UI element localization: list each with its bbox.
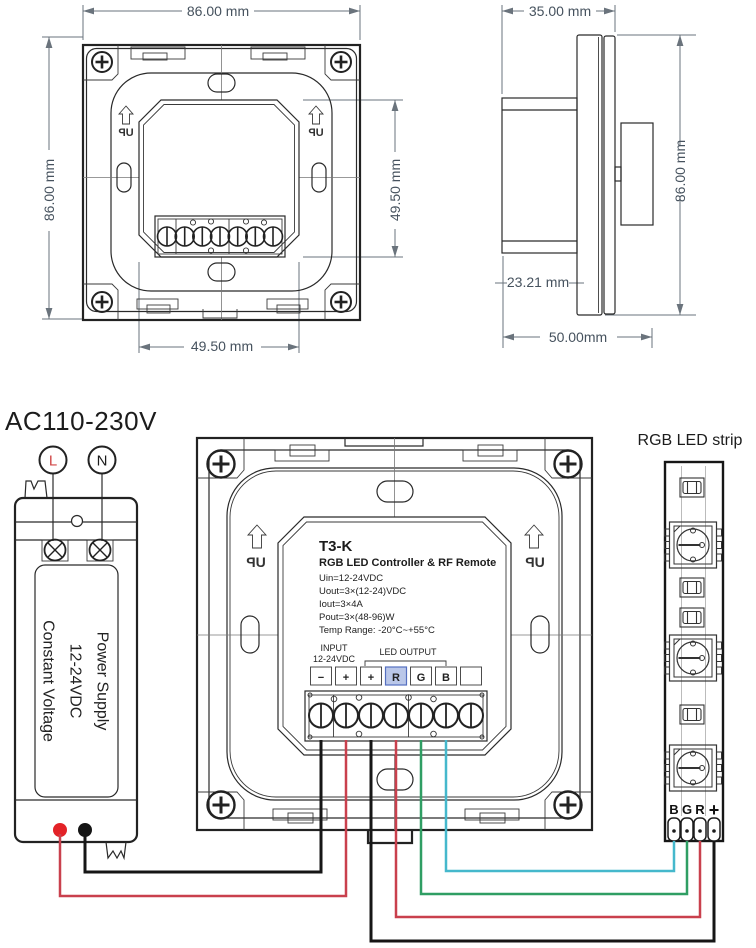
- panel-up-arrow-right: UP: [525, 525, 545, 570]
- front-panel-body: UP UP: [83, 45, 360, 320]
- wire-led-plus: [371, 740, 714, 941]
- controller-back-panel: UP UP T3-K RGB LED Controller & RF Remot…: [197, 438, 592, 843]
- spec-uin: Uin=12-24VDC: [319, 573, 383, 584]
- svg-text:Power Supply: Power Supply: [94, 632, 111, 731]
- dim-side-height-label: 86.00 mm: [672, 140, 688, 202]
- wire-led-r: [396, 740, 700, 917]
- input-voltage-label: 12-24VDC: [313, 654, 356, 664]
- led-strip-label: RGB LED strip: [638, 432, 743, 449]
- side-view: 35.00 mm 86.00 mm 23.21 mm 50.00mm: [495, 3, 696, 348]
- svg-text:12-24VDC: 12-24VDC: [67, 644, 84, 719]
- side-back-box: [502, 98, 577, 253]
- front-up-arrow-right: UP: [308, 106, 323, 139]
- wires: [60, 740, 714, 941]
- terminal-minus: −: [318, 672, 324, 684]
- terminal-r: R: [392, 672, 400, 684]
- terminal-labels: INPUT 12-24VDC LED OUTPUT − + + R G B: [311, 643, 482, 685]
- pad-label-plus: +: [709, 800, 720, 820]
- terminal-plus-out: +: [368, 672, 374, 684]
- strip-resistors: [680, 478, 704, 724]
- up-label: UP: [246, 554, 265, 570]
- terminal-b: B: [442, 672, 450, 684]
- terminal-plus-in: +: [343, 672, 349, 684]
- front-view: 86.00 mm 86.00 mm 49.50 mm: [41, 3, 403, 354]
- wiring-diagram: AC110-230V L N: [5, 406, 743, 941]
- controller-title: RGB LED Controller & RF Remote: [319, 557, 496, 569]
- dim-front-height-label: 86.00 mm: [41, 159, 57, 221]
- neutral-terminal: N: [89, 447, 116, 474]
- up-label: UP: [525, 554, 544, 570]
- panel-hole-left: [241, 616, 259, 653]
- ac-input-label: AC110-230V: [5, 406, 157, 436]
- technical-drawing-page: 86.00 mm 86.00 mm 49.50 mm: [0, 0, 756, 948]
- side-profile: [502, 35, 653, 315]
- spec-iout: Iout=3×4A: [319, 599, 364, 610]
- psu-label: Power Supply 12-24VDC Constant Voltage: [40, 620, 111, 742]
- spec-temp: Temp Range: -20°C~+55°C: [319, 625, 435, 636]
- terminal-g: G: [417, 672, 426, 684]
- dim-side-total-label: 50.00mm: [549, 329, 607, 345]
- front-touch-frame-inner: [144, 105, 295, 253]
- spec-uout: Uout=3×(12-24)VDC: [319, 586, 406, 597]
- pad-label-b: B: [669, 802, 678, 817]
- live-terminal: L: [40, 447, 67, 474]
- panel-hole-top: [377, 481, 413, 502]
- up-label: UP: [118, 127, 133, 139]
- pad-label-r: R: [695, 802, 705, 817]
- dim-side-depth-label: 23.21 mm: [507, 274, 569, 290]
- front-touch-frame-outer: [139, 100, 299, 257]
- dim-front-width: 86.00 mm: [83, 3, 360, 40]
- up-label: UP: [308, 127, 323, 139]
- panel-up-arrow-left: UP: [246, 525, 266, 570]
- spec-pout: Pout=3×(48-96)W: [319, 612, 395, 623]
- dim-front-inner-width-label: 49.50 mm: [191, 338, 253, 354]
- dim-side-height: 86.00 mm: [605, 35, 696, 315]
- psu-input-screws: [45, 540, 111, 561]
- led-controller-diagram: 86.00 mm 86.00 mm 49.50 mm: [0, 0, 756, 948]
- rgb-led-strip: RGB LED strip: [638, 432, 743, 841]
- power-supply: Power Supply 12-24VDC Constant Voltage: [15, 481, 137, 858]
- controller-specs: T3-K RGB LED Controller & RF Remote Uin=…: [319, 538, 496, 636]
- output-label: LED OUTPUT: [379, 647, 437, 657]
- dim-side-depth: 23.21 mm: [495, 274, 584, 290]
- neutral-label: N: [97, 453, 108, 470]
- strip-leds: [665, 522, 722, 791]
- dim-front-width-label: 86.00 mm: [187, 3, 249, 19]
- pad-label-g: G: [682, 802, 692, 817]
- front-terminal-block: [155, 216, 285, 257]
- screw-terminal-block: [305, 691, 487, 741]
- strip-pads: B G R +: [668, 800, 720, 841]
- live-label: L: [49, 453, 57, 470]
- dim-front-height: 86.00 mm: [41, 37, 83, 319]
- dim-front-inner-height-label: 49.50 mm: [387, 159, 403, 221]
- side-wall-block: [621, 123, 653, 225]
- front-mounting-clips: [131, 47, 308, 318]
- dim-side-width-label: 35.00 mm: [529, 3, 591, 19]
- controller-model: T3-K: [319, 538, 353, 555]
- front-up-arrow-left: UP: [118, 106, 133, 139]
- svg-text:Constant Voltage: Constant Voltage: [40, 620, 57, 742]
- input-label: INPUT: [321, 643, 349, 653]
- panel-hole-right: [531, 616, 549, 653]
- dim-front-inner-width: 49.50 mm: [139, 262, 299, 354]
